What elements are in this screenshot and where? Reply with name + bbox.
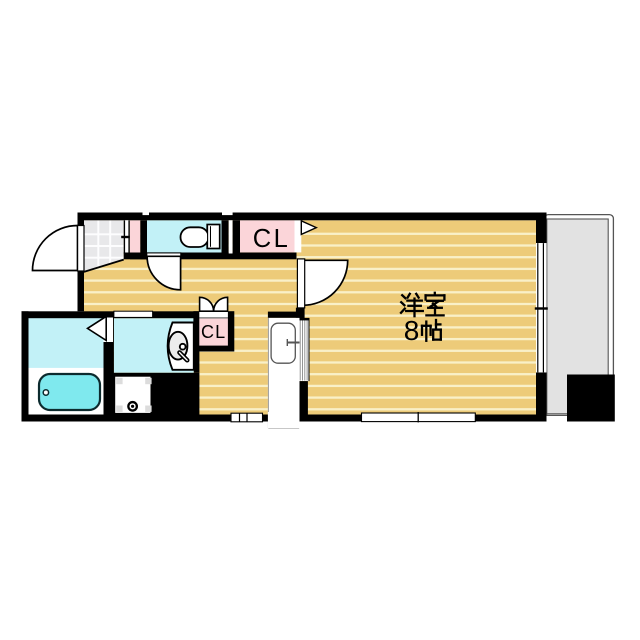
svg-text:8: 8 bbox=[404, 315, 420, 346]
svg-text:CL: CL bbox=[253, 225, 291, 253]
svg-text:CL: CL bbox=[201, 322, 226, 342]
